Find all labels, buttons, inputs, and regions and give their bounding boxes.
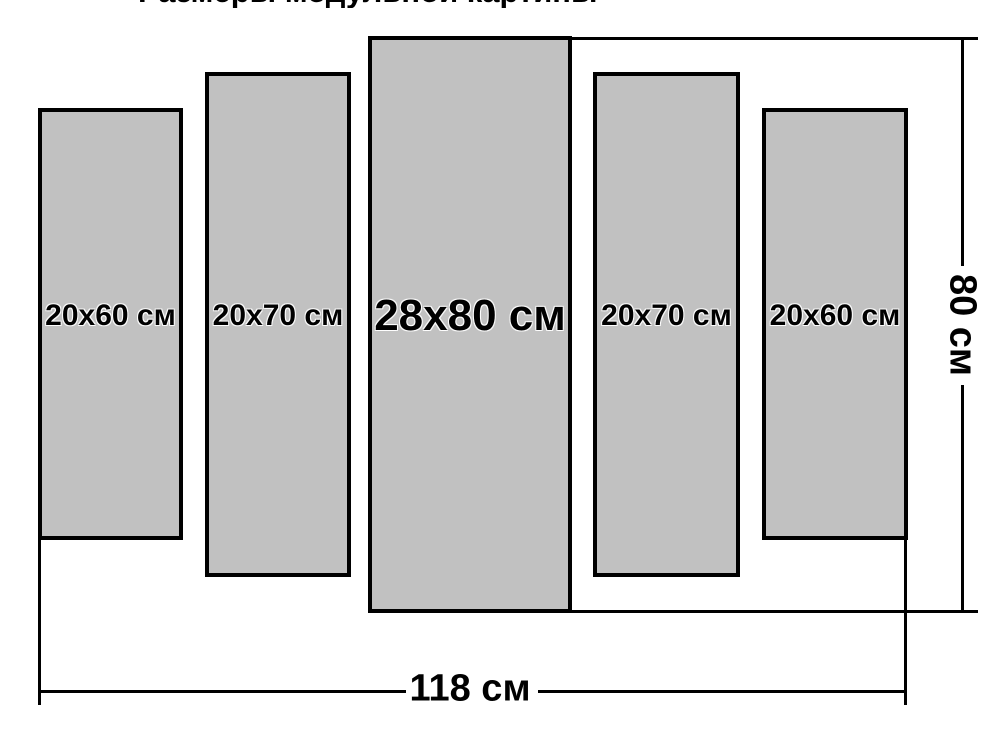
panel-size-label: 20x70 см: [589, 296, 744, 336]
width-dimension-line-left: [38, 690, 406, 693]
panel-size-label: 20x60 см: [758, 296, 912, 336]
panel-20x70-right: 20x70 см: [593, 72, 740, 577]
width-extension-line-left: [38, 540, 41, 705]
height-dimension-line-upper: [961, 37, 964, 266]
panel-20x60-left: 20x60 см: [38, 108, 183, 540]
total-height-label: 80 см: [941, 274, 984, 376]
height-extension-line-top: [572, 37, 978, 40]
height-extension-line-bottom: [572, 610, 978, 613]
modular-picture-size-diagram: Размеры модульной картины 20x60 см 20x70…: [0, 0, 1000, 732]
panel-28x80-center: 28x80 см: [368, 36, 572, 613]
panel-size-label: 28x80 см: [364, 292, 576, 340]
panel-20x70-left: 20x70 см: [205, 72, 351, 577]
total-width-label: 118 см: [409, 668, 530, 711]
clipped-title: Размеры модульной картины: [138, 0, 618, 8]
panel-20x60-right: 20x60 см: [762, 108, 908, 540]
width-dimension-line-right: [538, 690, 907, 693]
width-extension-line-right: [904, 540, 907, 705]
height-dimension-line-lower: [961, 385, 964, 613]
title-text: Размеры модульной картины: [138, 0, 618, 8]
panel-size-label: 20x70 см: [201, 296, 355, 336]
panel-size-label: 20x60 см: [34, 296, 187, 336]
